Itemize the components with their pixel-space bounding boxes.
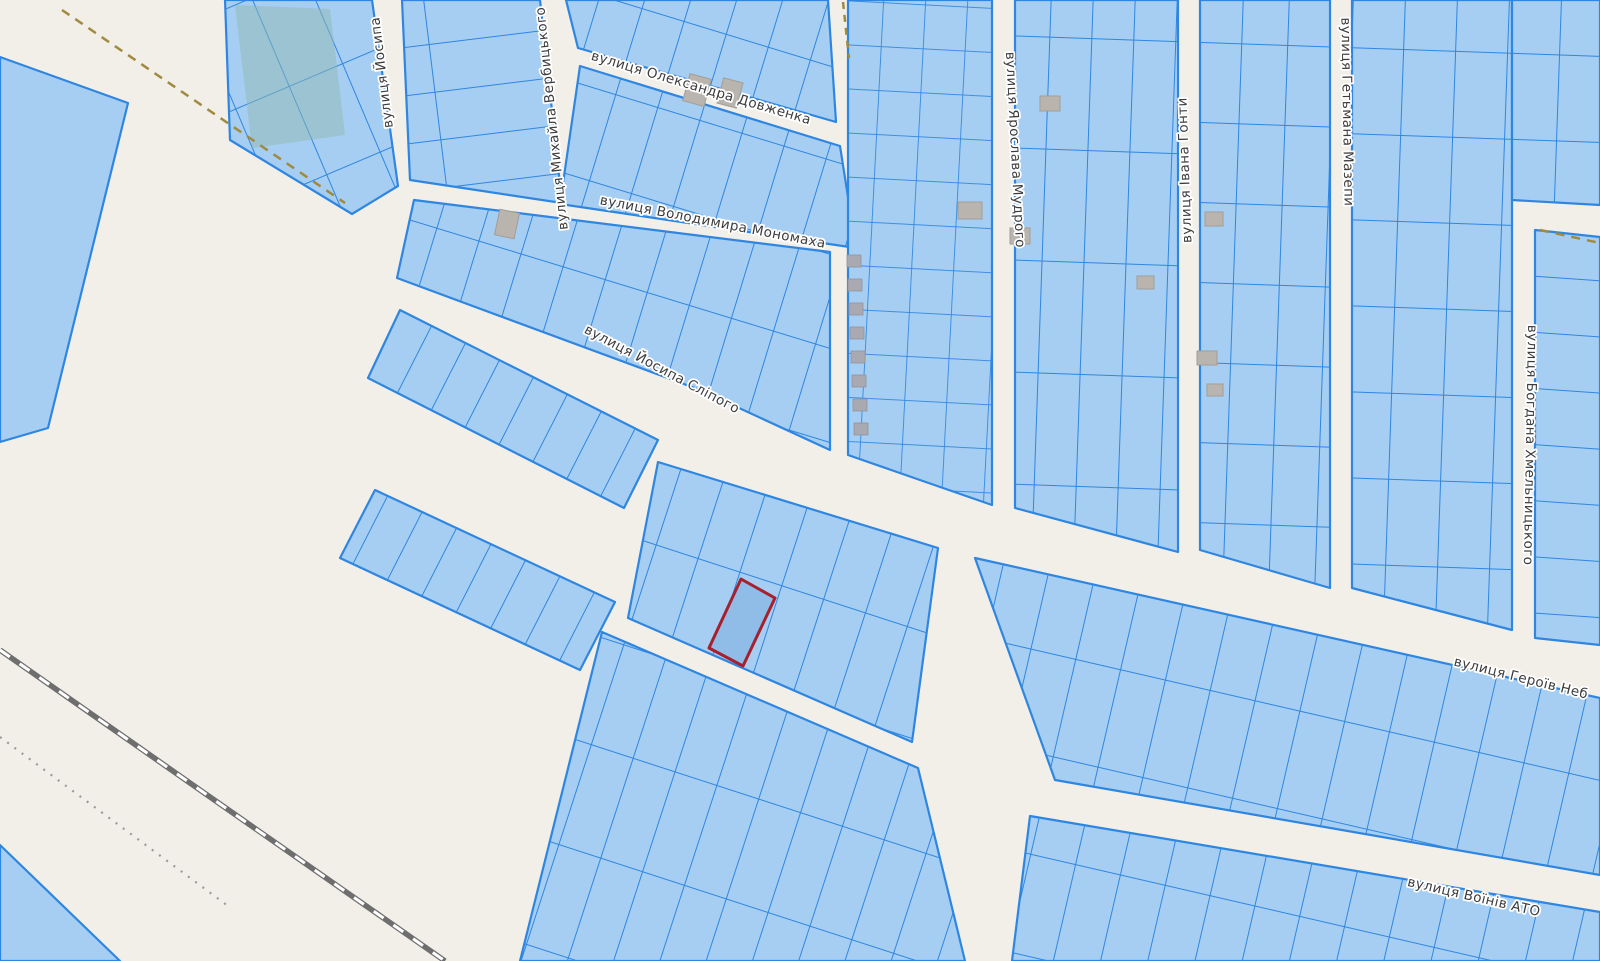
parcel-block-mazepy-khmelnytskoho[interactable] xyxy=(1352,0,1512,630)
parcel-block-dense-central[interactable] xyxy=(848,0,992,505)
map-canvas[interactable]: вулиця Олександра Довженка вулиця Володи… xyxy=(0,0,1600,961)
parcel-block-east-strip[interactable] xyxy=(1535,230,1600,645)
parcel-block-topright-corner[interactable] xyxy=(1512,0,1600,205)
parcel-block-honty-mazepy[interactable] xyxy=(1200,0,1330,588)
street-label-mazepy: вулиця Гетьмана Мазепи xyxy=(1337,17,1356,206)
green-area xyxy=(235,5,345,148)
